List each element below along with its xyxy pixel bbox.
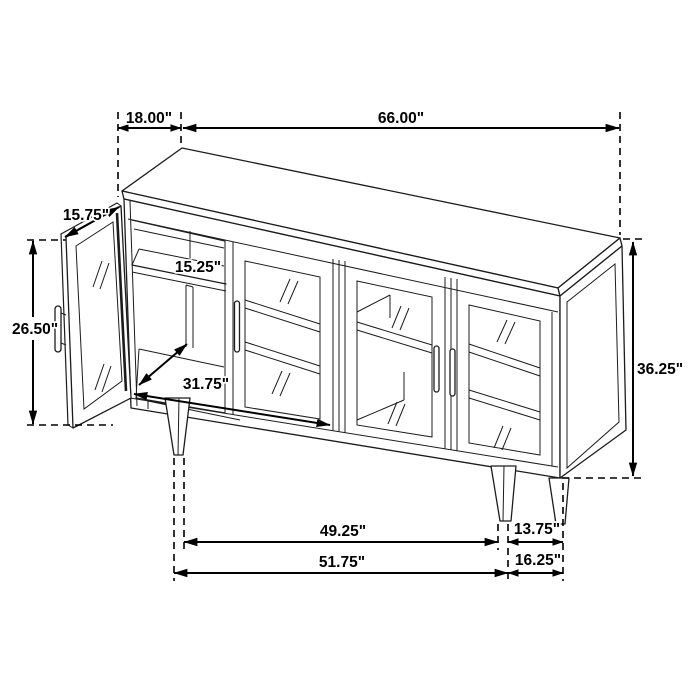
door-3-handle-icon	[434, 346, 439, 392]
dimension-label-top-depth: 18.00"	[126, 110, 172, 127]
cabinet-drawing	[55, 148, 626, 524]
front-left-leg	[165, 398, 190, 455]
dimension-label-side-legs: 13.75"	[514, 521, 560, 538]
dimension-label-shelf-depth: 15.25"	[175, 259, 221, 276]
door-4-handle-icon	[450, 349, 455, 396]
dimension-label-door-height: 26.50"	[12, 321, 58, 338]
diagram-canvas: 18.00" 66.00" 15.75" 26.50" 15.25" 31.75…	[0, 0, 700, 700]
cabinet-dimension-diagram: 18.00" 66.00" 15.75" 26.50" 15.25" 31.75…	[0, 0, 700, 700]
dimension-label-top-width: 66.00"	[378, 110, 424, 127]
dimension-label-legs-inner: 49.25"	[320, 523, 366, 540]
door-2-handle-icon	[235, 301, 240, 352]
dimension-label-legs-outer: 51.75"	[319, 554, 365, 571]
back-right-leg	[549, 478, 569, 524]
dimension-label-overall-height: 36.25"	[637, 361, 683, 378]
dimension-label-side-depth: 16.25"	[515, 552, 561, 569]
dimension-label-interior-width: 31.75"	[183, 376, 229, 393]
dimension-label-door-width: 15.75"	[63, 207, 109, 224]
